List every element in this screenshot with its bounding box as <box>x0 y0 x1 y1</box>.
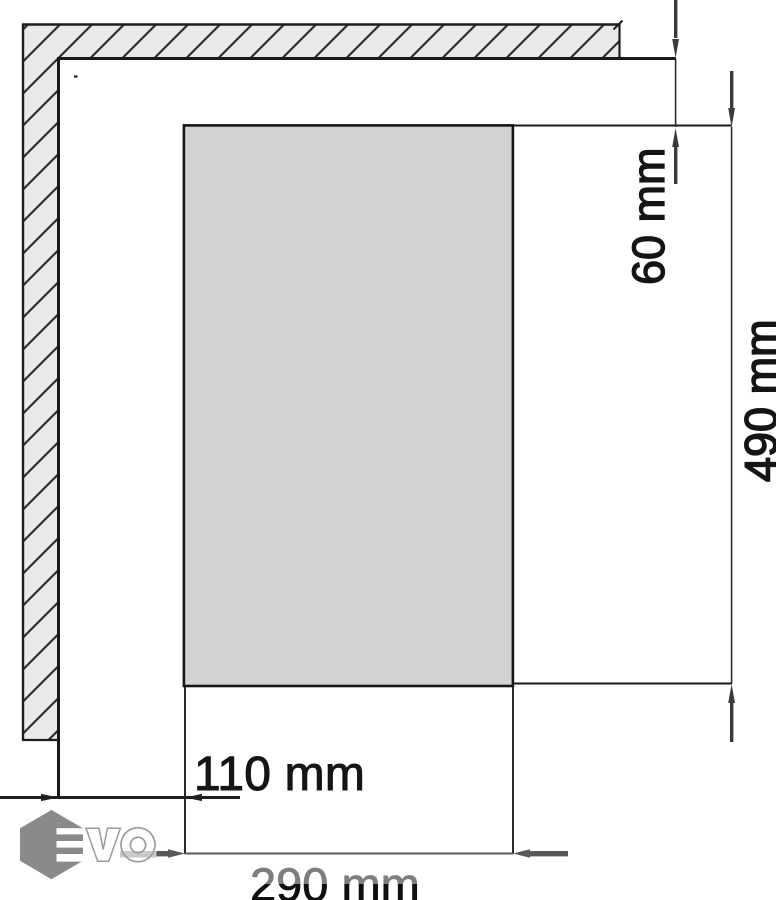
svg-text:110 mm: 110 mm <box>194 748 365 801</box>
svg-text:60 mm: 60 mm <box>623 147 674 285</box>
svg-text:490 mm: 490 mm <box>736 319 776 482</box>
svg-text:290 mm: 290 mm <box>250 858 420 900</box>
